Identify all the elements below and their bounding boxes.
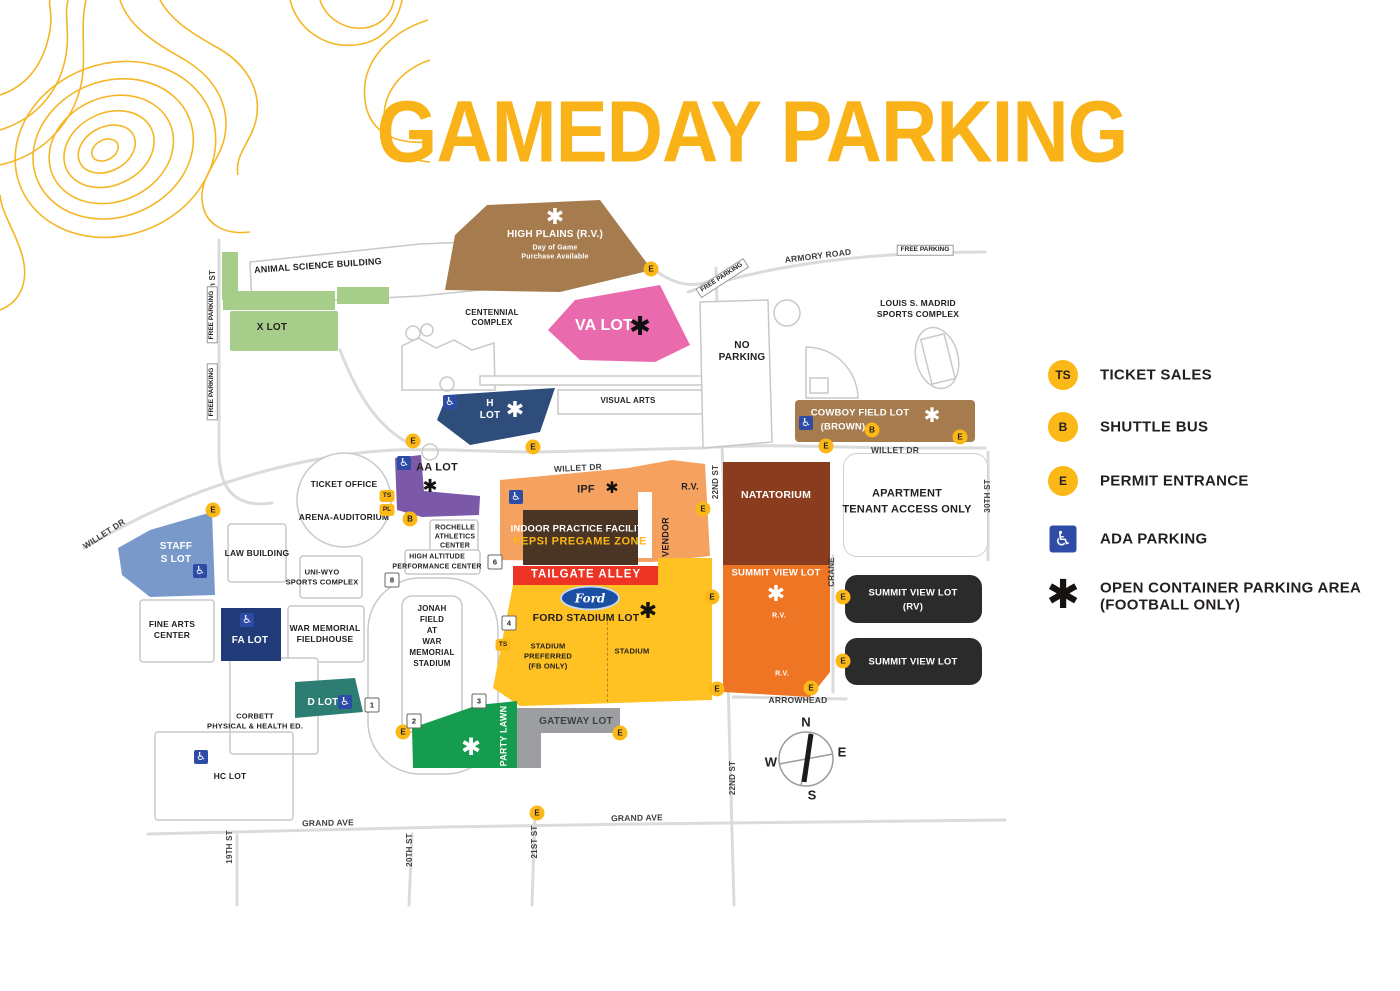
building-label-law: LAW BUILDING bbox=[225, 549, 290, 558]
lot-label-vendor: VENDOR bbox=[662, 517, 671, 557]
building-label-fieldhouse-1: WAR MEMORIAL bbox=[290, 624, 361, 633]
building-label-fieldhouse-2: FIELDHOUSE bbox=[297, 635, 354, 644]
open-container-icon: ✱ bbox=[422, 477, 437, 495]
lot-label-gateway: GATEWAY LOT bbox=[539, 717, 613, 727]
ford-logo: Ford bbox=[560, 586, 620, 611]
x-lot-strip bbox=[223, 291, 335, 310]
ford-lot-divider bbox=[607, 622, 608, 702]
lot-label-high-plains: HIGH PLAINS (R.V.) bbox=[507, 230, 603, 240]
building-label-madrid-1: LOUIS S. MADRID bbox=[880, 299, 956, 308]
building-label-uniwyo-1: UNI-WYO bbox=[305, 568, 340, 576]
x-lot-strip bbox=[337, 287, 389, 304]
gate-number-box: 6 bbox=[488, 555, 503, 570]
permit-entrance-badge: E bbox=[836, 654, 851, 669]
permit-entrance-badge: E bbox=[819, 439, 834, 454]
ada-parking-icon: ♿ bbox=[338, 695, 352, 709]
permit-entrance-badge: E bbox=[644, 262, 659, 277]
building-label-corbett-2: PHYSICAL & HEALTH ED. bbox=[207, 722, 303, 730]
lot-label-apartment-2: TENANT ACCESS ONLY bbox=[842, 505, 971, 516]
open-container-icon: ✱ bbox=[506, 399, 524, 421]
legend-open-container-icon: ✱ bbox=[1046, 575, 1080, 615]
permit-entrance-badge: E bbox=[836, 590, 851, 605]
street-label-arrowhead: ARROWHEAD bbox=[769, 696, 828, 705]
legend-ticket-sales-badge: TS bbox=[1048, 360, 1078, 390]
label-pepsi-pregame-zone: PEPSI PREGAME ZONE bbox=[513, 537, 647, 548]
permit-entrance-badge: E bbox=[696, 502, 711, 517]
lot-label-high-plains-note2: Purchase Available bbox=[521, 254, 588, 261]
legend-ada-icon: ♿ bbox=[1050, 526, 1077, 553]
label-no-parking-1: NO bbox=[734, 341, 749, 351]
gate-number-box: 1 bbox=[365, 698, 380, 713]
building-label-rochelle-2: ATHLETICS bbox=[435, 534, 476, 541]
lot-label-ford-left-1: STADIUM bbox=[530, 642, 565, 650]
gameday-parking-map: GAMEDAY PARKING 19th ST FREE PARKING FRE… bbox=[0, 0, 1400, 991]
free-parking-badge: FREE PARKING bbox=[897, 245, 954, 256]
lot-label-ford-left-3: (FB ONLY) bbox=[528, 662, 567, 670]
permit-entrance-badge: E bbox=[613, 726, 628, 741]
legend-permit-entrance-badge: E bbox=[1048, 466, 1078, 496]
label-tailgate-alley: TAILGATE ALLEY bbox=[531, 569, 641, 581]
building-label-jonah-3: AT bbox=[427, 627, 437, 635]
free-parking-badge: FREE PARKING bbox=[207, 364, 218, 421]
building-label-rochelle-3: CENTER bbox=[440, 543, 470, 550]
ada-parking-icon: ♿ bbox=[443, 395, 457, 409]
open-container-icon: ✱ bbox=[767, 583, 785, 605]
permit-entrance-badge: E bbox=[953, 430, 968, 445]
street-label-20th-st: 20TH ST bbox=[406, 833, 414, 866]
lot-label-cowboy-2: (BROWN) bbox=[821, 422, 866, 432]
legend-shuttle-bus-label: SHUTTLE BUS bbox=[1100, 419, 1208, 436]
permit-entrance-badge: E bbox=[526, 440, 541, 455]
building-label-rochelle-1: ROCHELLE bbox=[435, 525, 475, 532]
page-title: GAMEDAY PARKING bbox=[377, 81, 1128, 183]
shuttle-bus-badge: B bbox=[865, 423, 880, 438]
lot-label-ford-stadium: FORD STADIUM LOT bbox=[533, 613, 640, 624]
permit-entrance-badge: E bbox=[804, 681, 819, 696]
permit-entrance-badge: E bbox=[530, 806, 545, 821]
building-label-jonah-4: WAR bbox=[422, 638, 441, 646]
building-label-arena-auditorium: ARENA-AUDITORIUM bbox=[299, 513, 389, 522]
building-label-jonah-2: FIELD bbox=[420, 616, 444, 624]
legend-ada-label: ADA PARKING bbox=[1100, 531, 1207, 548]
lot-label-natatorium: NATATORIUM bbox=[741, 490, 811, 501]
open-container-icon: ✱ bbox=[461, 736, 481, 760]
open-container-icon: ✱ bbox=[639, 600, 657, 622]
label-no-parking-2: PARKING bbox=[719, 353, 766, 363]
legend-open-container-label-1: OPEN CONTAINER PARKING AREA bbox=[1100, 580, 1361, 597]
street-label-21st-st: 21ST ST bbox=[531, 826, 539, 859]
lot-label-hc: HC LOT bbox=[214, 772, 247, 781]
ada-parking-icon: ♿ bbox=[193, 564, 207, 578]
building-label-centennial-1: CENTENNIAL bbox=[465, 309, 519, 317]
compass-n: N bbox=[801, 716, 811, 729]
building-label-jonah-6: STADIUM bbox=[413, 660, 450, 668]
lot-label-h-2: LOT bbox=[480, 411, 501, 421]
lot-label-party-lawn: PARTY LAWN bbox=[500, 706, 509, 767]
lot-label-ipf: IPF bbox=[577, 485, 595, 496]
open-container-icon: ✱ bbox=[605, 481, 618, 497]
shuttle-bus-badge: B bbox=[403, 512, 418, 527]
lot-label-fa: FA LOT bbox=[232, 636, 268, 646]
permit-entrance-badge: E bbox=[206, 503, 221, 518]
building-label-madrid-2: SPORTS COMPLEX bbox=[877, 310, 959, 319]
building-label-corbett-1: CORBETT bbox=[236, 712, 274, 720]
building-label-centennial-2: COMPLEX bbox=[472, 319, 513, 327]
label-indoor-practice-facility: INDOOR PRACTICE FACILITY bbox=[511, 524, 650, 534]
ada-parking-icon: ♿ bbox=[194, 750, 208, 764]
open-container-icon: ✱ bbox=[924, 406, 941, 426]
lot-label-h-1: H bbox=[486, 399, 493, 409]
street-label-19th-st-bottom: 19TH ST bbox=[226, 830, 234, 863]
lot-label-summit-rv2: R.V. bbox=[775, 671, 789, 678]
street-label-30th-st: 30TH ST bbox=[984, 479, 992, 512]
permit-entrance-badge: E bbox=[710, 682, 725, 697]
lot-label-ipf-rv: R.V. bbox=[681, 483, 698, 492]
lot-label-staff-2: S LOT bbox=[161, 555, 191, 565]
ada-parking-icon: ♿ bbox=[799, 416, 813, 430]
street-label-willet-dr-center: WILLET DR bbox=[554, 462, 602, 473]
lot-label-summit-black-rv-2: (RV) bbox=[903, 602, 923, 612]
building-label-hapc-2: PERFORMANCE CENTER bbox=[392, 564, 481, 571]
street-label-crane: CRANE bbox=[828, 557, 836, 586]
street-label-grand-ave-east: GRAND AVE bbox=[611, 813, 663, 822]
building-label-ticket-office: TICKET OFFICE bbox=[311, 480, 378, 489]
lot-label-staff-1: STAFF bbox=[160, 542, 192, 552]
ticket-sales-badge: TS bbox=[380, 490, 395, 502]
ada-parking-icon: ♿ bbox=[509, 490, 523, 504]
street-label-grand-ave-west: GRAND AVE bbox=[302, 818, 354, 827]
street-label-22nd-st-top: 22ND ST bbox=[712, 465, 720, 499]
open-container-icon: ✱ bbox=[629, 313, 651, 339]
free-parking-badge: FREE PARKING bbox=[207, 287, 218, 344]
gate-number-box: 3 bbox=[472, 694, 487, 709]
ada-parking-icon: ♿ bbox=[240, 613, 254, 627]
building-label-finearts-2: CENTER bbox=[154, 631, 190, 640]
compass-e: E bbox=[838, 746, 847, 759]
lot-label-d: D LOT bbox=[308, 698, 339, 708]
lot-label-summit: SUMMIT VIEW LOT bbox=[731, 568, 820, 578]
pl-badge: PL bbox=[380, 504, 395, 516]
permit-entrance-badge: E bbox=[705, 590, 720, 605]
building-label-uniwyo-2: SPORTS COMPLEX bbox=[286, 578, 359, 586]
summit-view-rv-lot-black bbox=[845, 575, 982, 623]
legend-shuttle-bus-badge: B bbox=[1048, 412, 1078, 442]
permit-entrance-badge: E bbox=[406, 434, 421, 449]
gate-number-box: 4 bbox=[502, 616, 517, 631]
legend-permit-entrance-label: PERMIT ENTRANCE bbox=[1100, 473, 1249, 490]
gate-number-box: 2 bbox=[407, 714, 422, 729]
building-label-jonah-5: MEMORIAL bbox=[409, 649, 454, 657]
compass-w: W bbox=[765, 756, 777, 769]
open-container-icon: ✱ bbox=[546, 206, 564, 228]
lot-label-ford-right: STADIUM bbox=[614, 647, 649, 655]
lot-label-summit-black: SUMMIT VIEW LOT bbox=[868, 657, 957, 667]
lot-label-x: X LOT bbox=[257, 323, 287, 333]
legend-ticket-sales-label: TICKET SALES bbox=[1100, 367, 1212, 384]
legend-open-container-label-2: (FOOTBALL ONLY) bbox=[1100, 597, 1240, 614]
ada-parking-icon: ♿ bbox=[397, 456, 411, 470]
lot-label-summit-rv1: R.V. bbox=[772, 613, 786, 620]
lot-label-summit-black-rv-1: SUMMIT VIEW LOT bbox=[868, 588, 957, 598]
building-label-visual-arts: VISUAL ARTS bbox=[600, 397, 655, 405]
lot-label-high-plains-note1: Day of Game bbox=[533, 245, 578, 252]
compass-s: S bbox=[808, 789, 817, 802]
building-label-hapc-1: HIGH ALTITUDE bbox=[409, 554, 465, 561]
compass-rose bbox=[779, 732, 833, 786]
ticket-sales-badge: TS bbox=[496, 639, 511, 651]
lot-label-ford-left-2: PREFERRED bbox=[524, 652, 572, 660]
lot-label-cowboy-1: COWBOY FIELD LOT bbox=[811, 408, 910, 418]
natatorium-building bbox=[723, 462, 830, 574]
lot-label-aa: AA LOT bbox=[416, 463, 458, 474]
building-label-jonah-1: JONAH bbox=[417, 605, 446, 613]
lot-label-apartment-1: APARTMENT bbox=[872, 489, 942, 500]
gate-number-box: 8 bbox=[385, 573, 400, 588]
lot-label-va: VA LOT bbox=[575, 318, 633, 334]
building-label-finearts-1: FINE ARTS bbox=[149, 620, 195, 629]
street-label-22nd-st-bottom: 22ND ST bbox=[729, 761, 737, 795]
street-label-willet-dr-east: WILLET DR bbox=[871, 446, 919, 455]
